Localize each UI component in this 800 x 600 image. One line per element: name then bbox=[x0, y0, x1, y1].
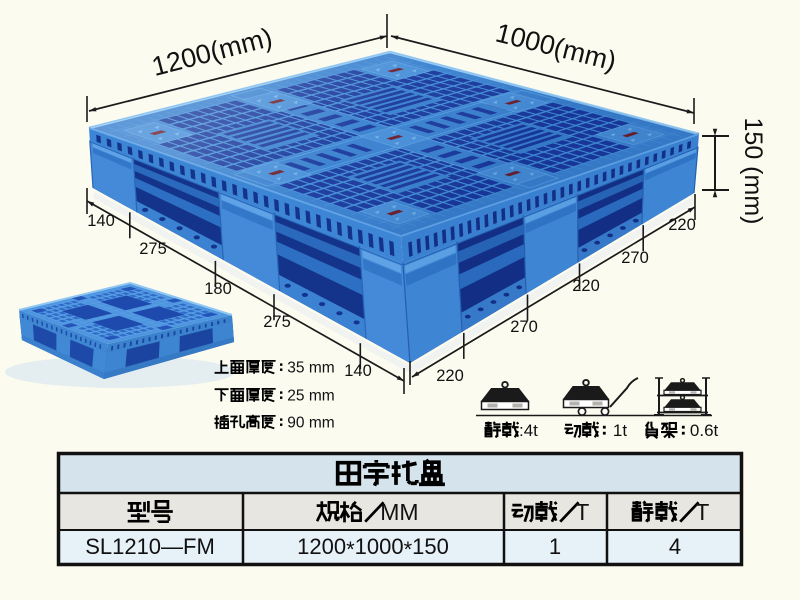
svg-text:220: 220 bbox=[572, 277, 600, 295]
svg-text:SL1210—FM: SL1210—FM bbox=[85, 534, 215, 559]
svg-text:MM: MM bbox=[380, 499, 418, 525]
svg-text:270: 270 bbox=[510, 318, 538, 336]
svg-text:275: 275 bbox=[263, 313, 291, 331]
svg-text:25 mm: 25 mm bbox=[287, 388, 334, 405]
svg-text:0.6t: 0.6t bbox=[690, 421, 719, 440]
svg-text:T: T bbox=[695, 499, 709, 525]
svg-text:1t: 1t bbox=[613, 421, 627, 440]
svg-text:220: 220 bbox=[436, 367, 464, 385]
svg-text:90 mm: 90 mm bbox=[287, 415, 334, 432]
svg-text:4: 4 bbox=[669, 534, 681, 559]
svg-text:140: 140 bbox=[87, 212, 115, 230]
svg-text:180: 180 bbox=[204, 280, 232, 298]
svg-text::4t: :4t bbox=[519, 421, 538, 440]
svg-text:1200*1000*150: 1200*1000*150 bbox=[297, 534, 449, 562]
svg-text:220: 220 bbox=[668, 216, 696, 234]
svg-text:275: 275 bbox=[139, 240, 167, 258]
svg-text:1: 1 bbox=[549, 534, 561, 559]
svg-text:35 mm: 35 mm bbox=[287, 360, 334, 377]
svg-text:140: 140 bbox=[344, 362, 372, 380]
svg-text:T: T bbox=[575, 499, 589, 525]
svg-text:150 (mm): 150 (mm) bbox=[739, 118, 767, 225]
svg-text:270: 270 bbox=[621, 249, 649, 267]
